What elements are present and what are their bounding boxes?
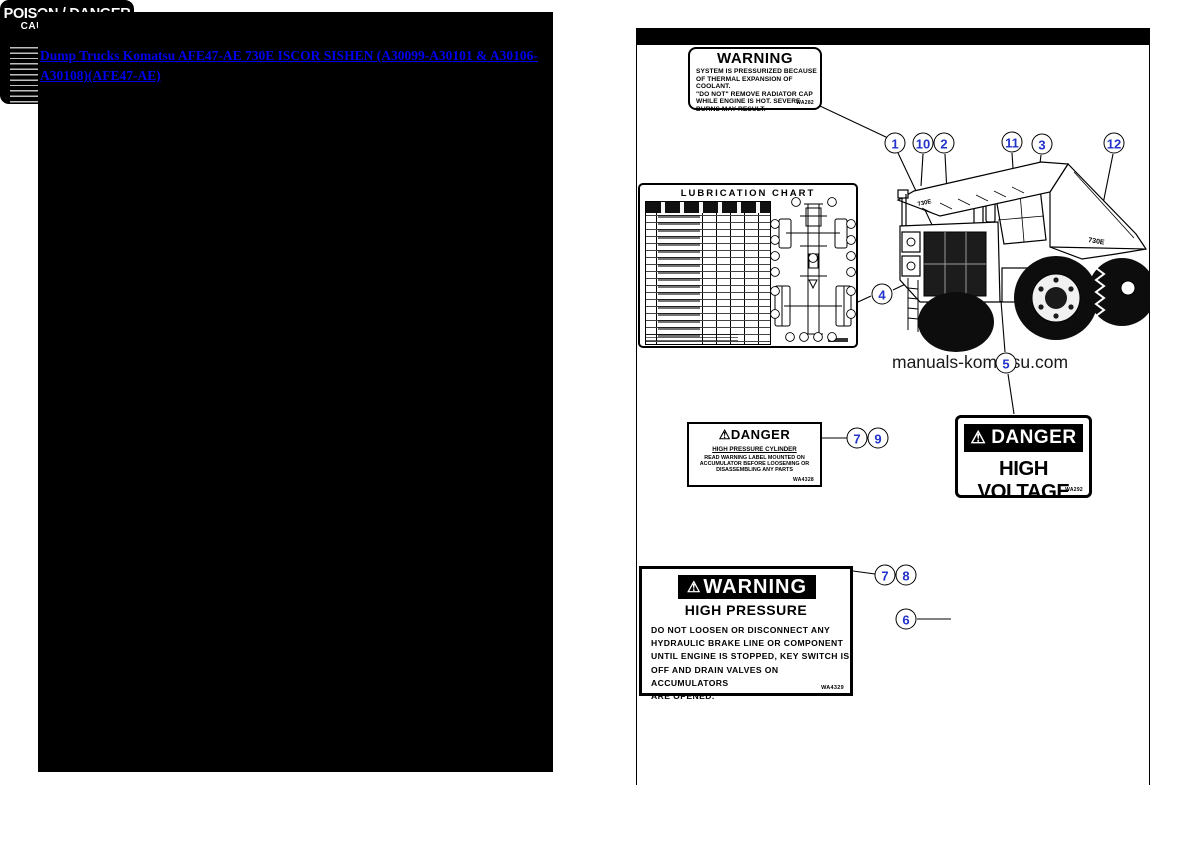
callout-circle-4: 4 — [872, 284, 893, 305]
callout-circle-9: 9 — [868, 428, 889, 449]
chassis-top-view-diagram — [770, 196, 856, 342]
callout-circle-3: 3 — [1032, 134, 1053, 155]
radiator-warning-title: WARNING — [690, 51, 820, 67]
high-voltage-danger-label: ⚠ DANGER HIGH VOLTAGE WA292 — [955, 415, 1092, 498]
callout-circle-7b: 7 — [875, 565, 896, 586]
radiator-warning-code: WA282 — [796, 100, 814, 106]
lubrication-chart-footnotes — [646, 334, 738, 343]
callout-circle-6: 6 — [896, 609, 917, 630]
callout-circle-8: 8 — [896, 565, 917, 586]
high-pressure-warning-title: WARNING — [703, 576, 807, 599]
hp-cylinder-danger-title: DANGER — [731, 427, 790, 442]
callout-circle-11: 11 — [1002, 132, 1023, 153]
high-pressure-warning-label: ⚠ WARNING HIGH PRESSURE DO NOT LOOSEN OR… — [639, 566, 853, 696]
callout-circle-10: 10 — [913, 133, 934, 154]
callout-circle-1: 1 — [885, 133, 906, 154]
radiator-warning-label: WARNING SYSTEM IS PRESSURIZED BECAUSEOF … — [688, 47, 822, 110]
callout-circle-7a: 7 — [847, 428, 868, 449]
warning-triangle-icon: ⚠ — [719, 427, 731, 442]
hp-cylinder-danger-subtitle: HIGH PRESSURE CYLINDER — [689, 446, 820, 453]
lubrication-chart: LUBRICATION CHART — [638, 183, 858, 348]
high-voltage-code: WA292 — [1065, 487, 1083, 493]
callout-circle-2: 2 — [934, 133, 955, 154]
hp-cylinder-danger-label: ⚠DANGER HIGH PRESSURE CYLINDER READ WARN… — [687, 422, 822, 487]
lubrication-chart-table — [645, 201, 771, 345]
page-top-bar — [636, 28, 1150, 45]
callout-circle-5: 5 — [996, 353, 1017, 374]
hp-cylinder-danger-code: WA4328 — [793, 477, 814, 483]
warning-triangle-icon: ⚠ — [970, 428, 986, 448]
watermark-text: manuals-komatsu.com — [892, 352, 1068, 373]
callout-circle-12: 12 — [1104, 133, 1125, 154]
high-pressure-warning-text: DO NOT LOOSEN OR DISCONNECT ANYHYDRAULIC… — [651, 624, 850, 703]
high-voltage-title: DANGER — [991, 427, 1076, 449]
hp-cylinder-danger-text: READ WARNING LABEL MOUNTED ONACCUMULATOR… — [689, 455, 820, 473]
left-black-panel: Dump Trucks Komatsu AFE47-AE 730E ISCOR … — [38, 12, 553, 772]
high-pressure-warning-subtitle: HIGH PRESSURE — [642, 602, 850, 618]
warning-triangle-icon: ⚠ — [687, 578, 701, 596]
high-pressure-warning-code: WA4329 — [821, 685, 844, 691]
radiator-warning-text: SYSTEM IS PRESSURIZED BECAUSEOF THERMAL … — [696, 68, 820, 114]
high-voltage-subtitle: HIGH VOLTAGE — [957, 458, 1091, 504]
manual-viewer-page: Dump Trucks Komatsu AFE47-AE 730E ISCOR … — [0, 0, 1190, 842]
manual-title-link[interactable]: Dump Trucks Komatsu AFE47-AE 730E ISCOR … — [40, 46, 551, 86]
